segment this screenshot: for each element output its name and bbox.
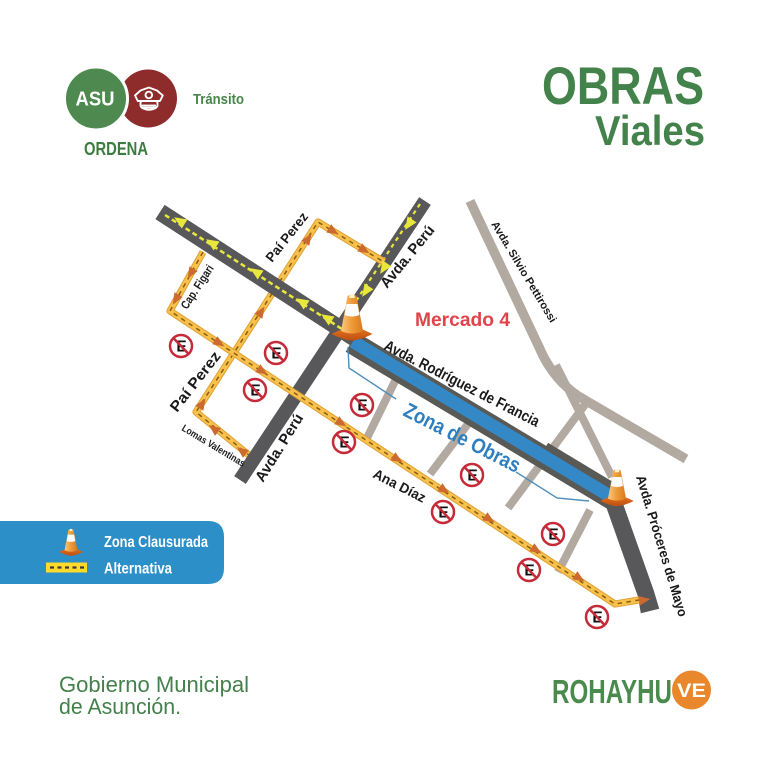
svg-text:ORDENA: ORDENA bbox=[84, 139, 148, 159]
svg-text:Zona Clausurada: Zona Clausurada bbox=[104, 534, 208, 551]
svg-text:de Asunción.: de Asunción. bbox=[59, 694, 181, 719]
svg-text:VE: VE bbox=[677, 680, 706, 702]
svg-text:Tránsito: Tránsito bbox=[193, 91, 244, 108]
svg-text:ASU: ASU bbox=[76, 89, 115, 111]
svg-text:ROHAYHU: ROHAYHU bbox=[552, 673, 672, 710]
svg-text:Alternativa: Alternativa bbox=[104, 561, 172, 578]
svg-text:Viales: Viales bbox=[595, 107, 705, 154]
svg-text:Mercado 4: Mercado 4 bbox=[415, 310, 510, 331]
